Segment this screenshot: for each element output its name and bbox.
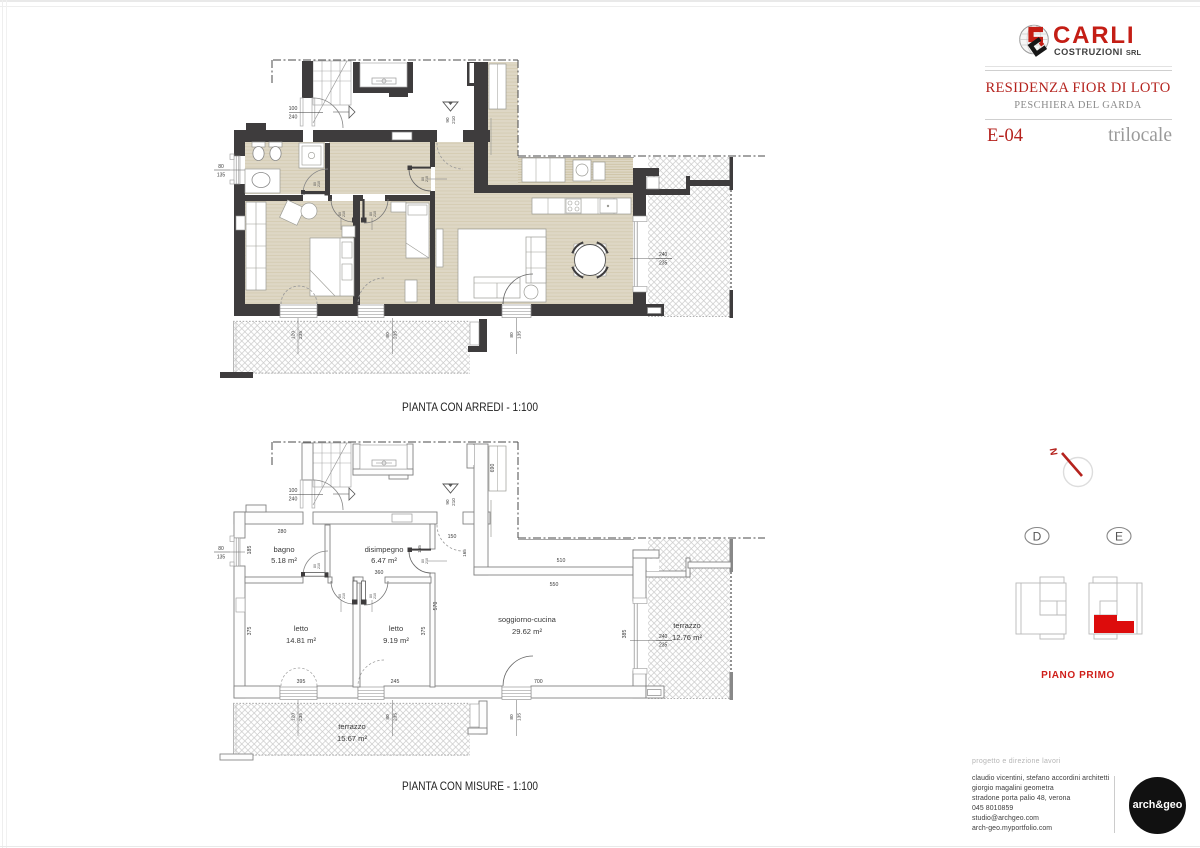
svg-text:9.19 m²: 9.19 m² <box>383 636 409 645</box>
svg-text:550: 550 <box>550 582 559 588</box>
svg-text:210: 210 <box>317 181 321 187</box>
svg-text:235: 235 <box>393 331 399 339</box>
svg-text:210: 210 <box>451 498 456 506</box>
svg-text:terrazzo: terrazzo <box>673 621 700 630</box>
svg-text:100: 100 <box>289 106 298 112</box>
svg-text:235: 235 <box>659 643 668 649</box>
svg-text:80: 80 <box>509 332 515 338</box>
svg-text:80: 80 <box>385 332 391 338</box>
svg-text:235: 235 <box>298 713 304 721</box>
svg-text:135: 135 <box>517 713 523 721</box>
svg-text:90: 90 <box>445 499 450 505</box>
svg-text:bagno: bagno <box>273 545 294 554</box>
svg-text:700: 700 <box>534 679 543 685</box>
svg-text:disimpegno: disimpegno <box>365 545 404 554</box>
svg-text:80: 80 <box>218 546 224 552</box>
svg-text:letto: letto <box>294 624 308 633</box>
svg-text:210: 210 <box>317 563 321 569</box>
svg-text:135: 135 <box>517 331 523 339</box>
svg-text:PIANTA CON MISURE - 1:100: PIANTA CON MISURE - 1:100 <box>402 781 538 793</box>
svg-text:210: 210 <box>373 593 377 599</box>
svg-text:375: 375 <box>421 627 427 636</box>
svg-text:235: 235 <box>659 261 668 267</box>
svg-text:165: 165 <box>462 549 467 557</box>
svg-text:soggiorno-cucina: soggiorno-cucina <box>498 615 557 624</box>
svg-text:235: 235 <box>393 713 399 721</box>
svg-text:280: 280 <box>278 529 287 535</box>
svg-text:690: 690 <box>490 464 496 473</box>
svg-text:terrazzo: terrazzo <box>338 722 365 731</box>
svg-text:letto: letto <box>389 624 403 633</box>
svg-text:80: 80 <box>509 714 515 720</box>
svg-text:375: 375 <box>247 627 253 636</box>
svg-text:185: 185 <box>247 546 253 555</box>
svg-text:6.47 m²: 6.47 m² <box>371 556 397 565</box>
svg-text:80: 80 <box>385 714 391 720</box>
svg-text:240: 240 <box>289 497 298 503</box>
svg-text:100: 100 <box>289 488 298 494</box>
svg-text:360: 360 <box>375 570 384 576</box>
svg-text:150: 150 <box>448 534 457 540</box>
svg-text:15.67 m²: 15.67 m² <box>337 734 367 743</box>
svg-text:245: 245 <box>391 679 400 685</box>
svg-text:90: 90 <box>445 117 450 123</box>
svg-text:510: 510 <box>557 558 566 564</box>
svg-text:570: 570 <box>433 602 439 611</box>
svg-text:120: 120 <box>291 713 297 721</box>
svg-text:12.76 m²: 12.76 m² <box>672 633 702 642</box>
svg-text:5.18 m²: 5.18 m² <box>271 556 297 565</box>
svg-text:14.81 m²: 14.81 m² <box>286 636 316 645</box>
svg-text:240: 240 <box>659 634 668 640</box>
svg-text:D: D <box>1033 530 1042 544</box>
svg-text:395: 395 <box>297 679 306 685</box>
svg-text:240: 240 <box>289 115 298 121</box>
svg-text:29.62 m²: 29.62 m² <box>512 627 542 636</box>
svg-text:135: 135 <box>217 555 226 561</box>
svg-text:210: 210 <box>373 211 377 217</box>
svg-text:E: E <box>1115 530 1123 544</box>
svg-text:165: 165 <box>417 545 422 553</box>
svg-text:PIANO PRIMO: PIANO PRIMO <box>1041 670 1115 681</box>
svg-text:235: 235 <box>298 331 304 339</box>
svg-text:120: 120 <box>291 331 297 339</box>
svg-text:385: 385 <box>622 630 628 639</box>
svg-text:210: 210 <box>342 211 346 217</box>
svg-text:210: 210 <box>342 593 346 599</box>
svg-text:210: 210 <box>451 116 456 124</box>
svg-text:80: 80 <box>218 164 224 170</box>
svg-text:PIANTA CON ARREDI - 1:100: PIANTA CON ARREDI - 1:100 <box>402 402 538 414</box>
svg-text:135: 135 <box>217 173 226 179</box>
svg-text:240: 240 <box>659 252 668 258</box>
